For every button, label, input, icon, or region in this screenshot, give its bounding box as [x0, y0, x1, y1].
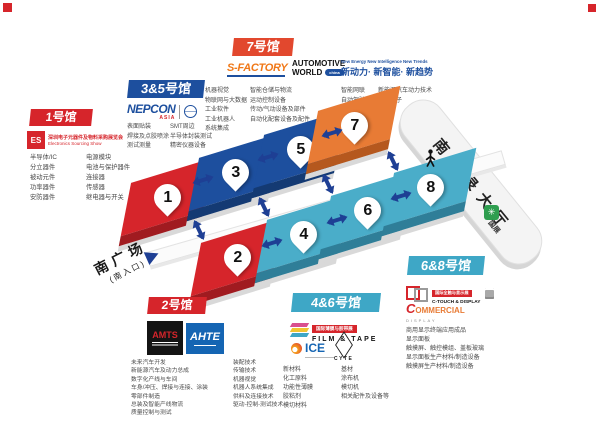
amts-logo-text: AMTS — [152, 330, 178, 340]
category-item: 相关配件及设备等 — [341, 393, 389, 402]
hall-6-8-badge: 6&8号馆 — [407, 256, 485, 275]
category-item: 半导体/IC — [30, 153, 57, 163]
category-item: 驱动-控制-测试技术 — [233, 401, 283, 409]
category-item: 测试测量 — [127, 142, 169, 152]
hall-2-category-list: 未来汽车开发 新能源汽车及动力总成 数字化产线与车间 车身/冲压、焊接与连接、涂… — [131, 359, 208, 418]
category-item: 被动元件 — [30, 173, 57, 183]
film-layers-icon — [291, 323, 308, 338]
hall-3-5-badge: 3&5号馆 — [127, 80, 205, 98]
hall-3-5-category-list: 表面贴装 焊接及点胶喷涂 测试测量 — [127, 123, 169, 152]
hall-1-pin: 1 — [148, 178, 186, 216]
pedestrian-icon — [424, 149, 437, 167]
prism-icon — [335, 331, 353, 358]
hall-1-badge: 1号馆 — [29, 109, 93, 126]
slogan-cn: 新动力· 新智能· 新趋势 — [341, 65, 433, 78]
automotive-text: AUTOMOTIVE — [292, 59, 345, 68]
ahte-logo-line — [194, 345, 216, 347]
corner-mark-left — [3, 3, 12, 12]
category-item: 触摸屏、触控模组、盖板玻璃 — [406, 345, 484, 354]
amts-logo: AMTS — [147, 321, 183, 355]
slogan-en: New Energy New Intelligence New Trends — [341, 59, 433, 64]
category-item: 新材料 — [283, 366, 313, 375]
hall-1-category-list: 半导体/IC 分立器件 被动元件 功率器件 安防器件 — [30, 153, 57, 203]
exhibition-floor-map: 1号馆 ES 深圳电子元器件及物料采购展览会 Electronics Sourc… — [0, 0, 600, 424]
corner-mark-right — [588, 4, 596, 12]
nepcon-logo-text: NEPCON — [127, 102, 175, 116]
film-tape-cn: 国际薄膜与胶带展 — [312, 325, 357, 333]
hall-2-pin: 2 — [218, 238, 256, 276]
category-item: 工业机器人 — [205, 116, 247, 126]
category-item: 显示面板生产材料/制造设备 — [406, 354, 484, 363]
category-item: 基材 — [341, 366, 389, 375]
category-item: 装配技术 — [233, 359, 283, 367]
category-item: 智能仓储与物流 — [250, 87, 310, 97]
world-text: WORLD — [292, 68, 322, 77]
hall-7-category-list-2: 智能仓储与物流 运动控制设备 传动/气动设备及部件 自动化配套设备及配件 — [250, 87, 310, 125]
cyte-logo: CYTE — [334, 335, 353, 362]
s-factory-logo-bar — [227, 75, 285, 77]
category-item: 显示面板 — [406, 336, 484, 345]
category-item: 总装及智能产线物流 — [131, 401, 208, 409]
guozhan-logo-icon: ✳ — [484, 205, 499, 220]
hall-3-pin: 3 — [216, 153, 254, 191]
category-item: 电源模块 — [86, 153, 130, 163]
flame-icon — [291, 343, 302, 354]
commercial-rest: OMMERCIAL — [415, 306, 464, 315]
stamp-icon — [485, 288, 494, 299]
automotive-world-logo: AUTOMOTIVE WORLD china — [292, 59, 345, 77]
hall-4-6-badge: 4&6号馆 — [291, 293, 381, 312]
es-logo-en: Electronics Sourcing Show — [48, 141, 123, 146]
category-item: 工业软件 — [205, 106, 247, 116]
category-item: 模切机 — [341, 384, 389, 393]
hall-2-category-list-2: 装配技术 传输技术 机器视觉 机器人系统集成 供料及连接技术 驱动-控制-测试技… — [233, 359, 283, 409]
category-item: 化工原料 — [283, 375, 313, 384]
commercial-sub: DISPLAY — [406, 318, 465, 323]
hall-7-category-list: 机器视觉 物联网与大数据 工业软件 工业机器人 系统集成 — [205, 87, 247, 135]
category-item: 胶粘剂 — [283, 393, 313, 402]
category-item: 传动/气动设备及部件 — [250, 106, 310, 116]
logo-divider — [179, 105, 180, 119]
automotive-slogan: New Energy New Intelligence New Trends 新… — [341, 59, 433, 78]
category-item: 传输技术 — [233, 367, 283, 375]
nepcon-asia-logo: NEPCON ASIA — [127, 102, 197, 121]
category-item: 未来汽车开发 — [131, 359, 208, 367]
ice-logo-text: ICE — [305, 341, 325, 355]
hall-4-6-category-list: 新材料 化工原料 功能性薄膜 胶粘剂 模切材料 — [283, 366, 313, 411]
category-item: 焊接及点胶喷涂 — [127, 133, 169, 143]
ahte-logo-text: AHTE — [190, 331, 220, 343]
category-item: 电池与保护器件 — [86, 163, 130, 173]
category-item: 供料及连接技术 — [233, 393, 283, 401]
globe-icon — [184, 105, 197, 118]
hall-7-badge: 7号馆 — [232, 38, 294, 56]
s-factory-logo: S-FACTORY — [227, 62, 287, 77]
category-item: 质量控制与测试 — [131, 409, 208, 417]
category-item: 模切材料 — [283, 402, 313, 411]
category-item: 功能性薄膜 — [283, 384, 313, 393]
category-item: 机器视觉 — [205, 87, 247, 97]
category-item: 涂布机 — [341, 375, 389, 384]
category-item: 功率器件 — [30, 183, 57, 193]
category-item: 智能网联 — [341, 87, 365, 97]
commercial-display-logo: COMMERCIAL DISPLAY — [406, 300, 465, 323]
es-logo-cn: 深圳电子元器件及物料采购展览会 — [48, 134, 123, 141]
category-item: 零部件制造 — [131, 393, 208, 401]
es-show-logo: ES 深圳电子元器件及物料采购展览会 Electronics Sourcing … — [27, 131, 123, 149]
category-item: 系统集成 — [205, 125, 247, 135]
amts-logo-lines — [152, 342, 178, 347]
ice-logo: ICE — [291, 339, 335, 358]
category-item: 物联网与大数据 — [205, 97, 247, 107]
ahte-logo: AHTE — [186, 323, 224, 354]
category-item: 机器视觉 — [233, 376, 283, 384]
category-item: 分立器件 — [30, 163, 57, 173]
hall-2-badge: 2号馆 — [147, 297, 207, 314]
hall-4-pin: 4 — [284, 215, 322, 253]
category-item: 触摸屏生产材料/制造设备 — [406, 363, 484, 372]
hall-8-pin: 8 — [411, 168, 449, 206]
hall-6-pin: 6 — [348, 191, 386, 229]
hall-4-6-category-list-2: 基材 涂布机 模切机 相关配件及设备等 — [341, 366, 389, 402]
category-item: 新能源汽车及动力总成 — [131, 367, 208, 375]
ice-logo-line — [305, 357, 335, 358]
category-item: 安防器件 — [30, 193, 57, 203]
category-item: 数字化产线与车间 — [131, 376, 208, 384]
category-item: 机器人系统集成 — [233, 384, 283, 392]
c-touch-cn: 国际全触与显示展 — [432, 290, 472, 297]
commercial-c: C — [406, 301, 415, 316]
category-item: 商用显示终端应用成品 — [406, 327, 484, 336]
s-factory-logo-text: S-FACTORY — [227, 62, 287, 74]
es-logo-icon: ES — [27, 131, 45, 149]
category-item: 运动控制设备 — [250, 97, 310, 107]
hall-6-8-category-list: 商用显示终端应用成品 显示面板 触摸屏、触控模组、盖板玻璃 显示面板生产材料/制… — [406, 327, 484, 372]
category-item: 车身/冲压、焊接与连接、涂装 — [131, 384, 208, 392]
category-item: 表面贴装 — [127, 123, 169, 133]
